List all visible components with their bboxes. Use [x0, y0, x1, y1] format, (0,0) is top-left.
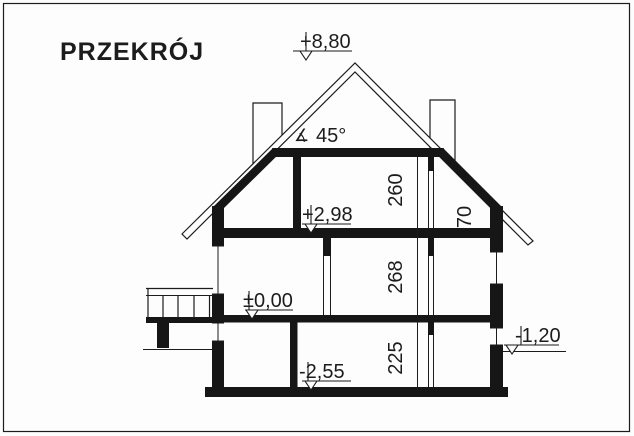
cross-section-sheet: PRZEKRÓJ +8,80 ∡ 45° +2,98 ±0,00 -2,55 -… — [0, 0, 634, 436]
cross-section-drawing: PRZEKRÓJ +8,80 ∡ 45° +2,98 ±0,00 -2,55 -… — [0, 0, 634, 436]
terrace — [143, 289, 224, 350]
drawing-title: PRZEKRÓJ — [60, 36, 204, 66]
ground-floor-door-lintel — [323, 238, 331, 256]
level-label-attic: +2,98 — [302, 204, 353, 226]
attic-floor-slab — [212, 228, 503, 238]
structure — [205, 148, 508, 397]
level-label-ridge: +8,80 — [300, 31, 351, 53]
ground-floor-slab — [212, 315, 503, 323]
terrace-deck — [146, 317, 224, 323]
attic-interior-wall — [293, 157, 301, 228]
left-wall-upper — [212, 206, 224, 246]
height-label-knee-wall: 70 — [454, 206, 476, 228]
right-wall-mid — [490, 284, 503, 328]
roof-slope-right — [431, 148, 503, 208]
chimney-stub-basement — [428, 322, 434, 335]
level-label-basement: -2,55 — [299, 361, 345, 383]
roof-slope-left — [212, 148, 285, 208]
right-wall-upper — [490, 206, 503, 252]
chimney-stub-attic — [428, 157, 434, 171]
left-wall-basement — [212, 341, 224, 387]
level-label-terrain: -1,20 — [515, 325, 561, 347]
right-wall-basement — [490, 345, 503, 387]
basement-interior-wall — [290, 322, 298, 387]
terrace-post — [157, 323, 169, 348]
railing-posts — [148, 289, 210, 317]
height-label-attic: 260 — [385, 173, 407, 206]
height-label-basement: 225 — [385, 341, 407, 374]
attic-ceiling — [272, 148, 444, 157]
roof-angle-label: 45° — [316, 125, 346, 147]
chimney-stub-ground — [428, 238, 434, 256]
angle-icon: ∡ — [294, 126, 309, 145]
level-label-ground: ±0,00 — [243, 290, 293, 312]
height-label-ground-floor: 268 — [385, 260, 407, 293]
thin-lines — [212, 157, 503, 390]
basement-floor-slab — [205, 387, 508, 397]
